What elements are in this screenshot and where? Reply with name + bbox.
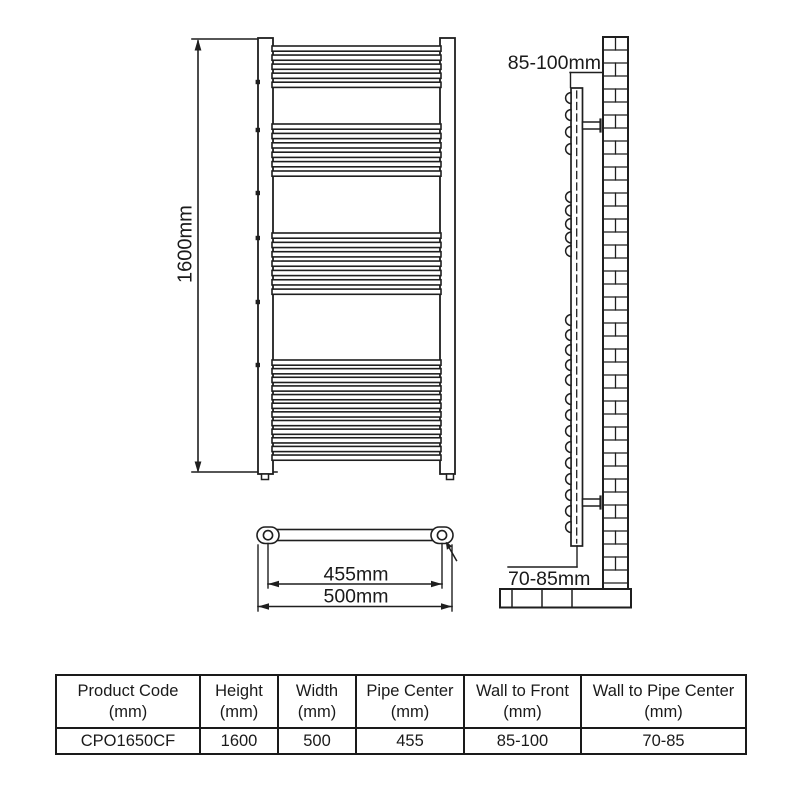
towel-bar-front bbox=[272, 395, 441, 400]
towel-bar-side-profile bbox=[566, 110, 571, 121]
towel-bar-front bbox=[272, 64, 441, 69]
col-unit: (mm) bbox=[357, 702, 463, 722]
wall-to-pipe-dimension-label: 70-85mm bbox=[508, 568, 590, 590]
towel-bar-front bbox=[272, 152, 441, 157]
towel-bar-front bbox=[272, 446, 441, 451]
floor bbox=[500, 589, 631, 608]
towel-bar-side-profile bbox=[566, 330, 571, 341]
towel-bar-side-profile bbox=[566, 375, 571, 386]
dimension-diagram: 1600mm 455mm 500mm bbox=[0, 0, 800, 665]
towel-bar-front bbox=[272, 73, 441, 78]
towel-bar-side-profile bbox=[566, 232, 571, 243]
rail-tick bbox=[256, 80, 260, 84]
towel-bar-side-profile bbox=[566, 315, 571, 326]
left-pipe-stub bbox=[262, 474, 269, 480]
col-header-wall-to-front: Wall to Front (mm) bbox=[464, 675, 581, 728]
col-header-wall-to-pipe-center: Wall to Pipe Center (mm) bbox=[581, 675, 746, 728]
cell-wall-to-front: 85-100 bbox=[464, 728, 581, 754]
towel-bar-front bbox=[272, 386, 441, 391]
towel-bar-side-profile bbox=[566, 345, 571, 356]
towel-bar-front bbox=[272, 261, 441, 266]
towel-bar-side-profile bbox=[566, 127, 571, 138]
radiator-technical-drawing: 1600mm 455mm 500mm bbox=[0, 0, 800, 800]
col-title: Wall to Pipe Center bbox=[582, 681, 745, 701]
wall-to-front-dimension-label: 85-100mm bbox=[508, 52, 601, 74]
col-title: Height bbox=[201, 681, 277, 701]
cell-pipe-center: 455 bbox=[356, 728, 464, 754]
towel-bar-front bbox=[272, 162, 441, 167]
towel-bar-front bbox=[272, 252, 441, 257]
spec-table-data-row: CPO1650CF 1600 500 455 85-100 70-85 bbox=[56, 728, 746, 754]
towel-bar-side-profile bbox=[566, 360, 571, 371]
towel-bar-side-profile bbox=[566, 394, 571, 405]
cell-wall-to-pipe-center: 70-85 bbox=[581, 728, 746, 754]
towel-bar-front bbox=[272, 124, 441, 129]
brick-wall bbox=[603, 37, 628, 589]
floor-outline bbox=[500, 589, 631, 608]
towel-bar-front bbox=[272, 233, 441, 238]
cell-height: 1600 bbox=[200, 728, 278, 754]
towel-bar-side-profile bbox=[566, 93, 571, 104]
bottom-wall-bracket bbox=[583, 499, 601, 506]
towel-bar-side-profile bbox=[566, 522, 571, 533]
height-dimension-label: 1600mm bbox=[175, 205, 197, 283]
col-unit: (mm) bbox=[465, 702, 580, 722]
towel-bar-front bbox=[272, 420, 441, 425]
towel-bar-front bbox=[272, 46, 441, 51]
towel-bar-front bbox=[272, 55, 441, 60]
col-title: Product Code bbox=[57, 681, 199, 701]
front-right-rail bbox=[440, 38, 455, 474]
col-title: Pipe Center bbox=[357, 681, 463, 701]
arrow-left-icon bbox=[258, 603, 269, 610]
rail-tick bbox=[256, 191, 260, 195]
towel-bar-side-profile bbox=[566, 246, 571, 257]
towel-bar-side-profile bbox=[566, 490, 571, 501]
spec-table-header-row: Product Code (mm) Height (mm) Width (mm)… bbox=[56, 675, 746, 728]
towel-bar-front bbox=[272, 270, 441, 275]
cell-product-code: CPO1650CF bbox=[56, 728, 200, 754]
arrow-left-icon bbox=[268, 581, 279, 588]
pipe-center-dimension-label: 455mm bbox=[323, 564, 388, 586]
rail-tick bbox=[256, 128, 260, 132]
top-wall-bracket bbox=[583, 122, 601, 129]
towel-bar-front bbox=[272, 455, 441, 460]
arrow-right-icon bbox=[431, 581, 442, 588]
col-unit: (mm) bbox=[57, 702, 199, 722]
col-header-width: Width (mm) bbox=[278, 675, 356, 728]
col-unit: (mm) bbox=[201, 702, 277, 722]
plan-tube bbox=[272, 530, 438, 541]
side-view: 85-100mm 70-85mm bbox=[500, 37, 631, 608]
col-title: Width bbox=[279, 681, 355, 701]
towel-bar-side-profile bbox=[566, 144, 571, 155]
col-header-product-code: Product Code (mm) bbox=[56, 675, 200, 728]
towel-bar-front bbox=[272, 171, 441, 176]
towel-bar-front bbox=[272, 438, 441, 443]
col-header-height: Height (mm) bbox=[200, 675, 278, 728]
towel-bar-side-profile bbox=[566, 442, 571, 453]
front-towel-bars bbox=[272, 46, 441, 460]
towel-bar-front bbox=[272, 429, 441, 434]
arrow-up-icon bbox=[195, 39, 202, 51]
front-left-rail bbox=[258, 38, 273, 474]
col-unit: (mm) bbox=[582, 702, 745, 722]
towel-bar-front bbox=[272, 412, 441, 417]
col-header-pipe-center: Pipe Center (mm) bbox=[356, 675, 464, 728]
col-unit: (mm) bbox=[279, 702, 355, 722]
towel-bar-front bbox=[272, 82, 441, 87]
towel-bar-front bbox=[272, 133, 441, 138]
arrow-right-icon bbox=[441, 603, 452, 610]
spec-table: Product Code (mm) Height (mm) Width (mm)… bbox=[55, 674, 747, 755]
towel-bar-side-profile bbox=[566, 219, 571, 230]
towel-bar-side-profile bbox=[566, 205, 571, 216]
towel-bar-front bbox=[272, 360, 441, 365]
towel-bar-front bbox=[272, 143, 441, 148]
towel-bar-side-profile bbox=[566, 426, 571, 437]
rail-tick bbox=[256, 300, 260, 304]
towel-bar-front bbox=[272, 242, 441, 247]
width-dimension-label: 500mm bbox=[323, 586, 388, 608]
left-pipe-center bbox=[263, 531, 272, 540]
towel-bar-side-profile bbox=[566, 192, 571, 203]
cell-width: 500 bbox=[278, 728, 356, 754]
towel-bar-front bbox=[272, 403, 441, 408]
rail-tick bbox=[256, 363, 260, 367]
right-pipe-center bbox=[437, 531, 446, 540]
towel-bar-front bbox=[272, 280, 441, 285]
towel-bar-side-profile bbox=[566, 458, 571, 469]
towel-bar-side-profile bbox=[566, 474, 571, 485]
towel-bar-front bbox=[272, 377, 441, 382]
right-pipe-stub bbox=[447, 474, 454, 480]
plan-view: 455mm 500mm bbox=[257, 527, 457, 611]
towel-bar-front bbox=[272, 289, 441, 294]
towel-bar-side-profile bbox=[566, 410, 571, 421]
rail-tick bbox=[256, 236, 260, 240]
front-view: 1600mm bbox=[175, 38, 456, 480]
towel-bar-front bbox=[272, 369, 441, 374]
towel-bar-side-profile bbox=[566, 506, 571, 517]
col-title: Wall to Front bbox=[465, 681, 580, 701]
